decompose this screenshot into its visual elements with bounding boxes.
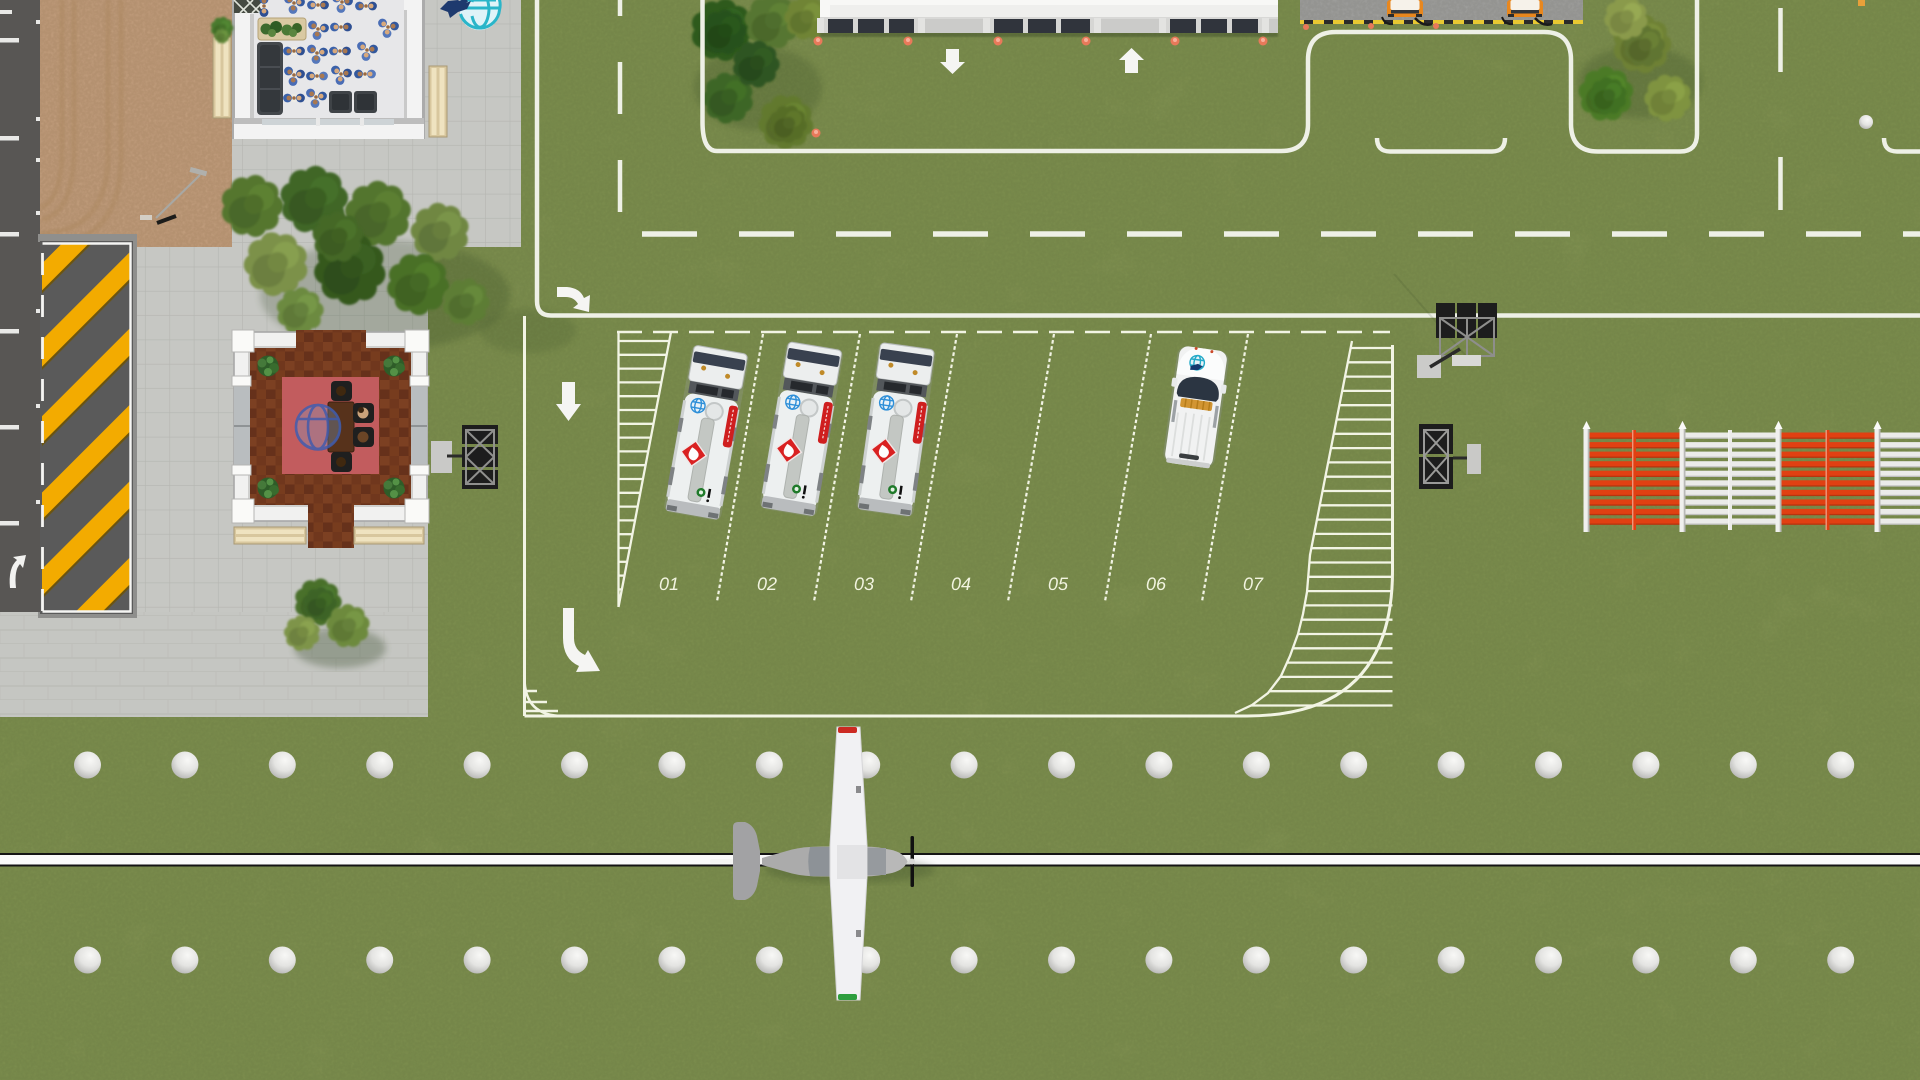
svg-text:06: 06: [1146, 574, 1167, 594]
svg-text:04: 04: [951, 574, 971, 594]
svg-text:03: 03: [854, 574, 874, 594]
svg-text:07: 07: [1243, 574, 1264, 594]
svg-text:02: 02: [757, 574, 777, 594]
svg-text:01: 01: [659, 574, 679, 594]
svg-text:05: 05: [1048, 574, 1069, 594]
